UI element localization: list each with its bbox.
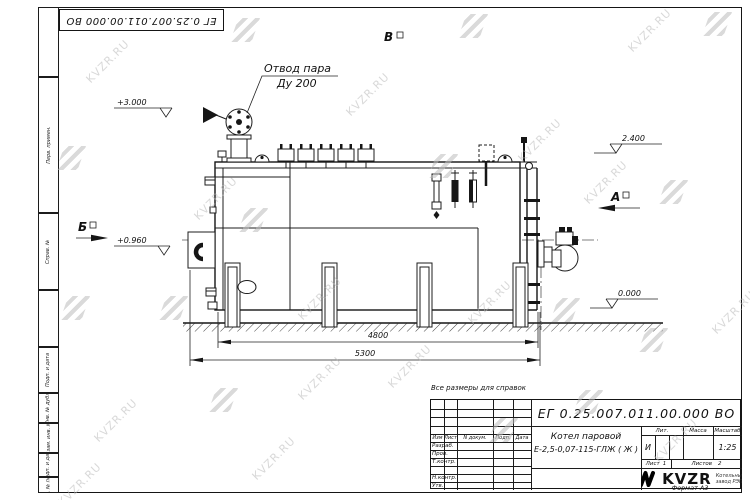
elevation-0000: 0.000	[590, 289, 658, 308]
elevation-2400: 2.400	[594, 134, 662, 153]
burner-assembly	[188, 232, 215, 268]
elevation-plus-3000: +3.000	[114, 98, 172, 117]
boiler-body	[215, 162, 540, 310]
left-dome	[253, 155, 271, 162]
rear-rod	[521, 137, 533, 170]
view-label-v: В	[384, 30, 403, 44]
drawing-sheet: Перв. примен. Справ. № Подп. и дата Инв.…	[0, 0, 750, 500]
svg-text:+3.000: +3.000	[117, 98, 147, 107]
steam-outlet-valve	[203, 107, 252, 162]
steam-outlet-callout: Отвод пара Ду 200	[247, 62, 338, 113]
svg-text:В: В	[384, 30, 393, 44]
svg-text:4800: 4800	[368, 331, 388, 340]
manhole	[238, 281, 256, 294]
valve-handwheel	[203, 107, 218, 123]
svg-text:+0.960: +0.960	[117, 236, 147, 245]
view-arrow-b: Б	[76, 220, 108, 241]
svg-text:Отвод пара: Отвод пара	[264, 62, 331, 75]
svg-text:0.000: 0.000	[618, 289, 641, 298]
elevation-plus-0960: +0.960	[114, 236, 170, 255]
svg-text:Б: Б	[78, 220, 87, 234]
svg-text:А: А	[610, 190, 620, 204]
boiler-side-view: Отвод пара Ду 200	[0, 0, 750, 500]
svg-text:5300: 5300	[355, 349, 375, 358]
svg-text:Ду 200: Ду 200	[276, 77, 317, 90]
pump-unit	[538, 227, 578, 271]
svg-text:2.400: 2.400	[622, 134, 645, 143]
safety-valve-dome	[496, 155, 514, 162]
view-arrow-a: А	[598, 190, 640, 211]
